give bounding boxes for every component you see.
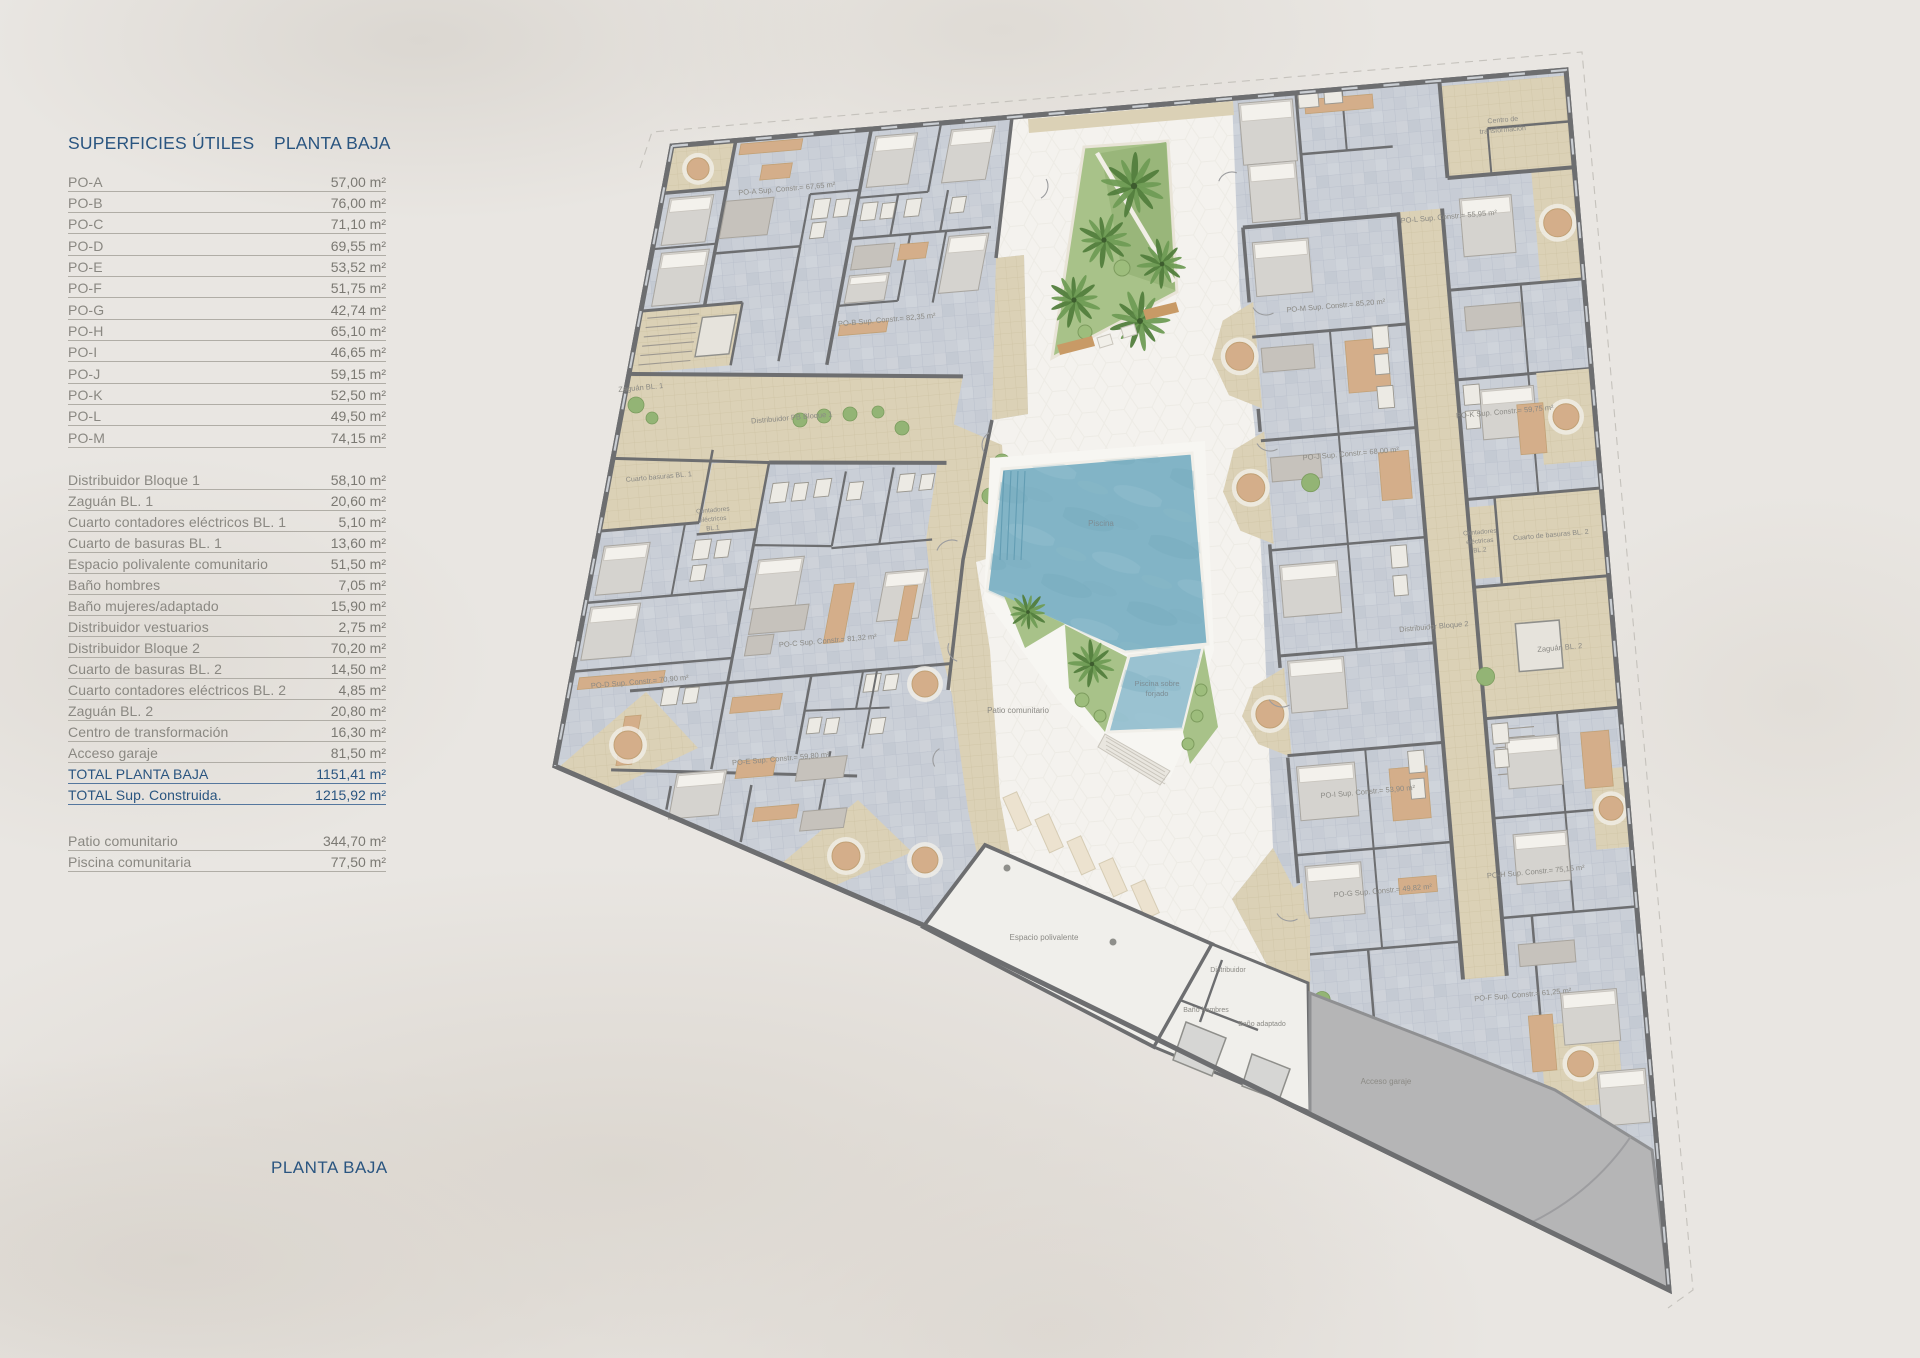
svg-text:Distribuidor: Distribuidor bbox=[1210, 967, 1246, 974]
svg-text:Acceso garaje: Acceso garaje bbox=[1361, 1077, 1412, 1086]
svg-text:Baño hombres: Baño hombres bbox=[1183, 1007, 1229, 1014]
svg-text:forjado: forjado bbox=[1146, 689, 1169, 698]
svg-text:Piscina: Piscina bbox=[1088, 519, 1114, 528]
svg-text:Patio comunitario: Patio comunitario bbox=[987, 706, 1049, 715]
svg-text:Piscina sobre: Piscina sobre bbox=[1134, 679, 1179, 688]
svg-text:Espacio polivalente: Espacio polivalente bbox=[1010, 933, 1079, 942]
svg-text:BL.1: BL.1 bbox=[706, 524, 720, 532]
svg-text:BL.2: BL.2 bbox=[1473, 546, 1487, 554]
svg-text:Baño adaptado: Baño adaptado bbox=[1238, 1021, 1286, 1028]
